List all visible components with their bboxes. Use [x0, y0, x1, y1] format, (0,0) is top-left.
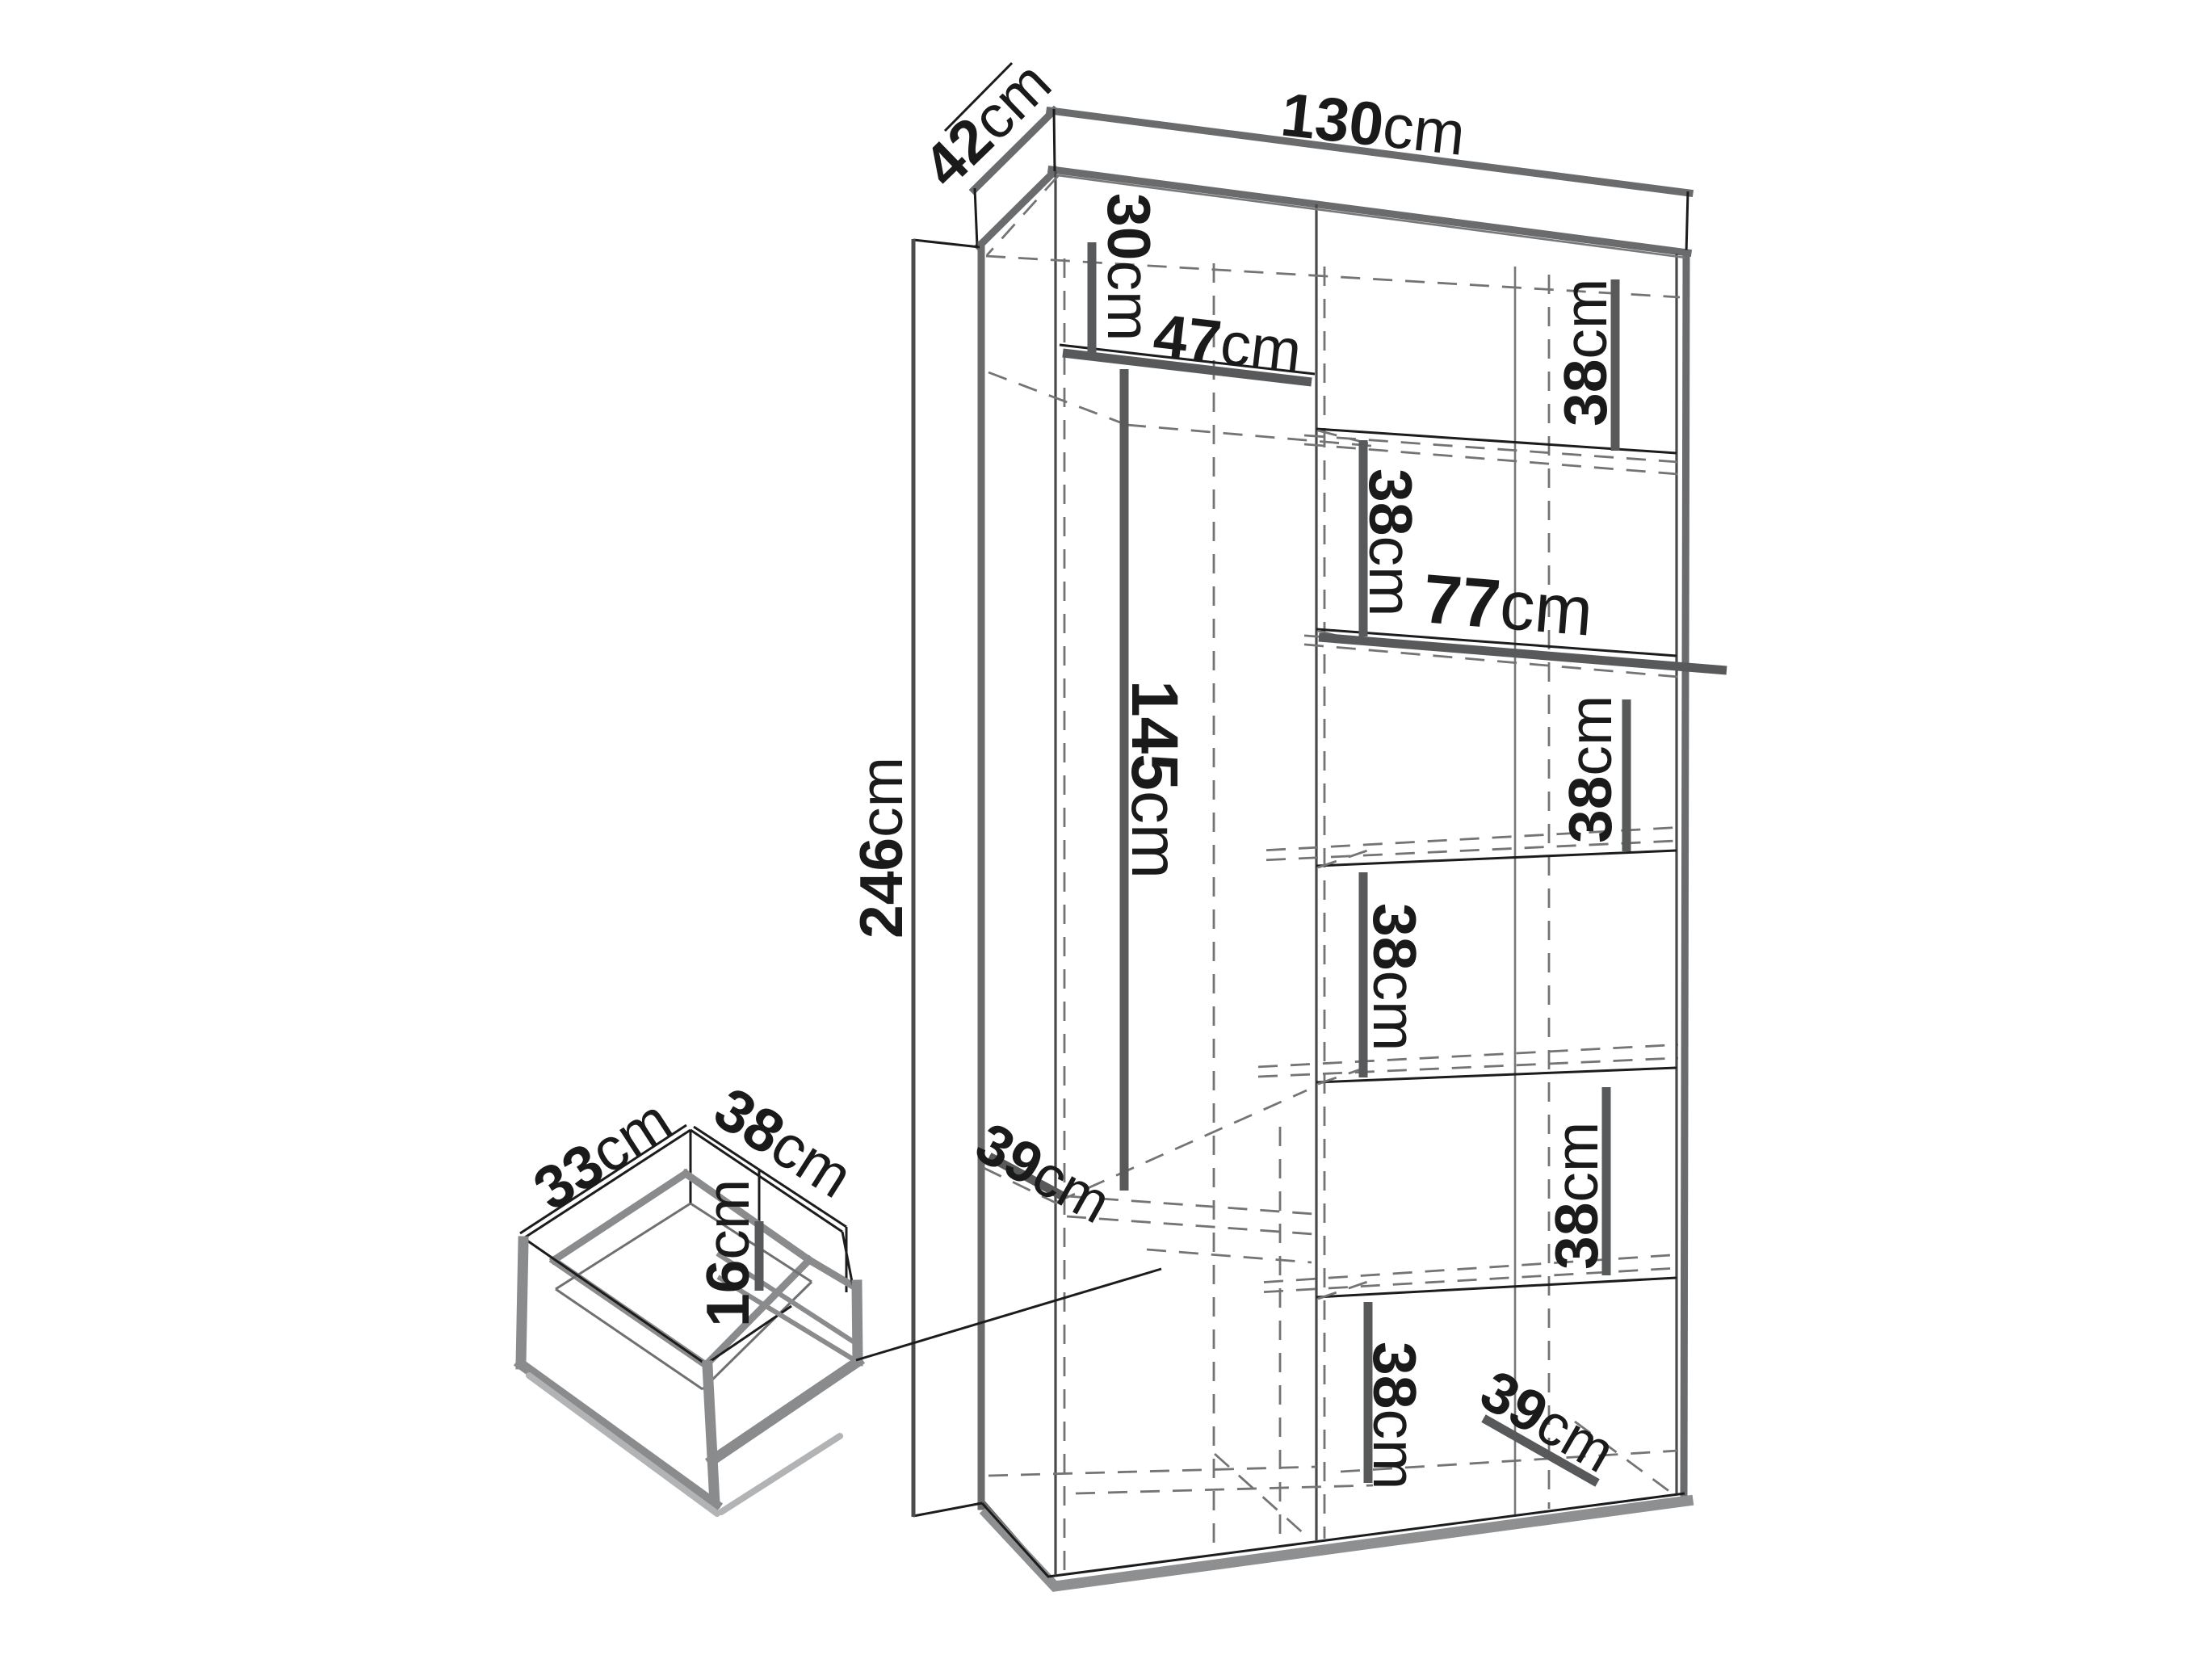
svg-text:77cm: 77cm: [1420, 560, 1595, 651]
svg-text:145cm: 145cm: [1118, 680, 1191, 879]
svg-text:38cm: 38cm: [1551, 279, 1619, 426]
svg-text:38cm: 38cm: [1357, 468, 1425, 616]
svg-text:38cm: 38cm: [1361, 903, 1429, 1051]
svg-text:246cm: 246cm: [847, 757, 915, 939]
svg-text:16cm: 16cm: [694, 1179, 762, 1327]
svg-text:38cm: 38cm: [1361, 1342, 1429, 1489]
svg-text:30cm: 30cm: [1095, 193, 1163, 341]
svg-text:38cm: 38cm: [1543, 1122, 1610, 1270]
svg-text:38cm: 38cm: [1556, 695, 1624, 843]
